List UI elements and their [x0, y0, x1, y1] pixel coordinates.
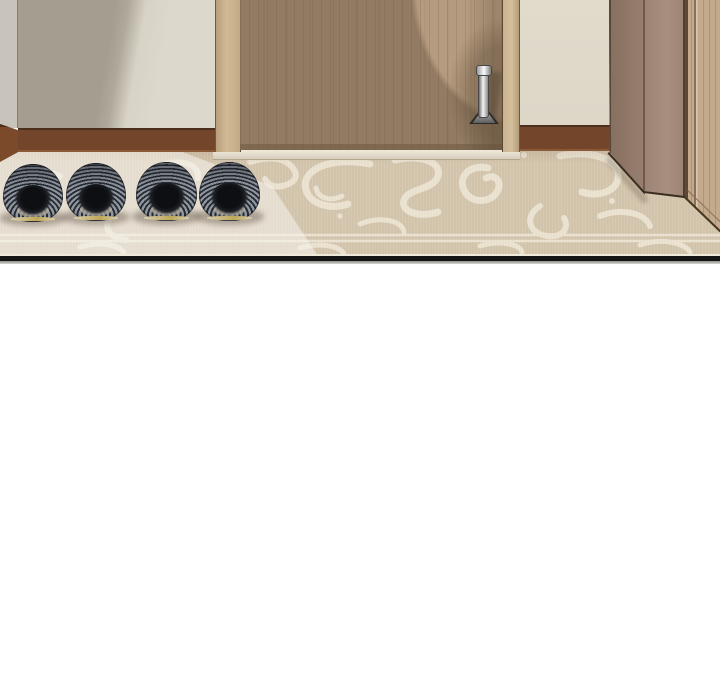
door-frame-right — [502, 0, 520, 152]
slipper-sole-edge — [11, 217, 55, 221]
right-wall — [518, 0, 610, 127]
comic-panel — [0, 0, 720, 266]
panel-border-shadow — [0, 261, 720, 264]
shoe-cabinet-front-face — [645, 0, 685, 199]
slipper-2 — [66, 163, 126, 221]
door-frame-left — [215, 0, 241, 152]
slipper-sole-edge — [207, 216, 252, 220]
handle-cap — [476, 65, 492, 76]
slipper-sole-edge — [74, 216, 118, 220]
slipper-sole-edge — [144, 216, 189, 220]
blank-gutter — [0, 266, 720, 700]
slipper-4 — [199, 162, 260, 221]
slipper-3 — [136, 162, 197, 221]
door-handle — [466, 62, 502, 126]
slipper-1 — [3, 164, 63, 222]
left-baseboard — [18, 128, 218, 152]
page — [0, 0, 720, 700]
side-panel-grain — [685, 0, 720, 233]
left-wall — [18, 0, 218, 131]
front-door — [240, 0, 502, 150]
right-baseboard — [518, 125, 610, 151]
door-cast-shadow — [240, 0, 502, 150]
wood-side-panel — [685, 0, 720, 233]
side-wall — [0, 0, 18, 128]
